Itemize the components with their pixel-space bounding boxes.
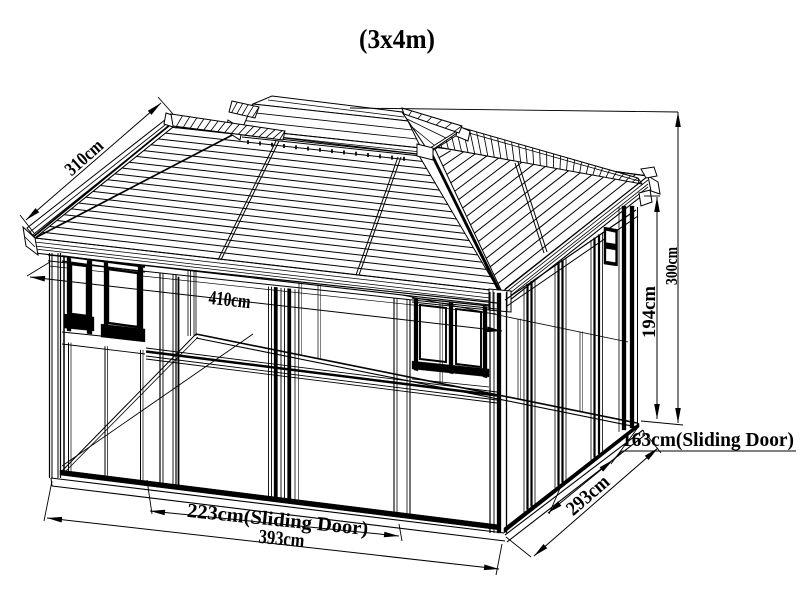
svg-text:300cm: 300cm bbox=[662, 247, 681, 285]
svg-text:163cm(Sliding Door): 163cm(Sliding Door) bbox=[622, 429, 794, 451]
svg-text:393cm: 393cm bbox=[258, 526, 306, 552]
svg-text:(3x4m): (3x4m) bbox=[359, 24, 435, 54]
svg-text:410cm: 410cm bbox=[208, 287, 252, 314]
svg-text:194cm: 194cm bbox=[639, 286, 660, 338]
